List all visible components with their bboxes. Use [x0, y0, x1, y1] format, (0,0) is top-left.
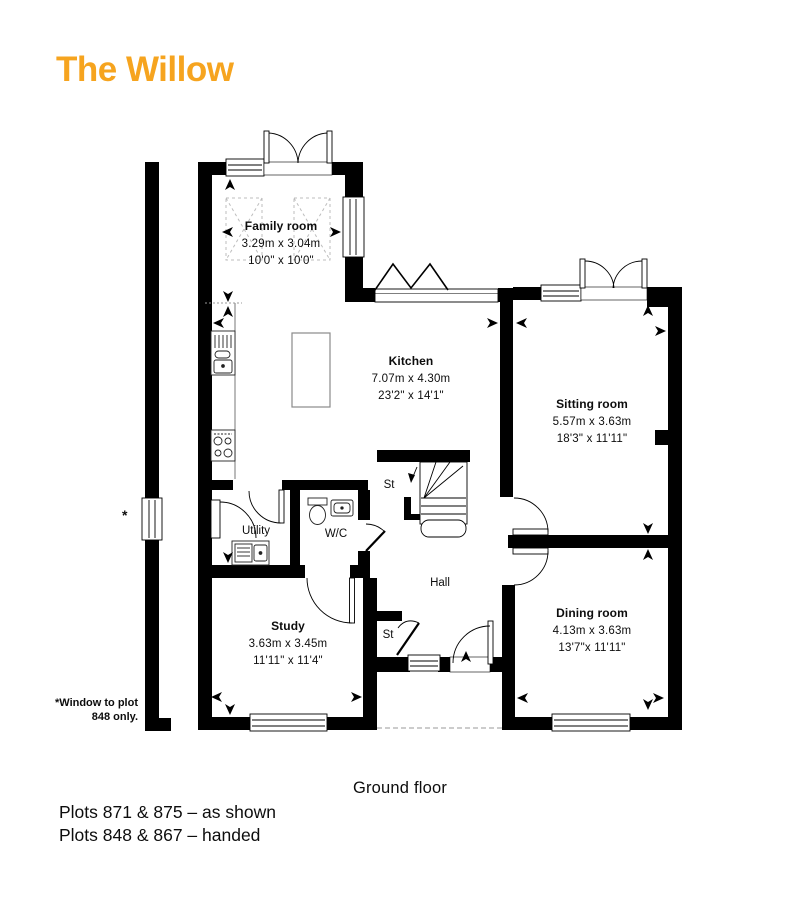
kitchen-sink-icon	[211, 331, 235, 375]
room-dim-metric: 5.57m x 3.63m	[553, 414, 632, 431]
hob-icon	[211, 430, 235, 461]
room-name: Kitchen	[372, 354, 451, 368]
room-dim-metric: 3.63m x 3.45m	[249, 636, 328, 653]
basin-icon	[331, 500, 353, 516]
window-note-line2: 848 only.	[18, 710, 138, 724]
utility-sink-icon	[232, 541, 269, 565]
plots-note: Plots 871 & 875 – as shown Plots 848 & 8…	[59, 801, 276, 847]
room-label-kitchen: Kitchen 7.07m x 4.30m 23'2" x 14'1"	[372, 354, 451, 404]
window-note-line1: *Window to plot	[18, 696, 138, 710]
room-dim-imperial: 18'3" x 11'11"	[553, 431, 632, 448]
room-name: Sitting room	[553, 397, 632, 411]
room-dim-imperial: 23'2" x 14'1"	[372, 388, 451, 405]
kitchen-island	[292, 333, 330, 407]
room-label-utility: Utility	[242, 525, 270, 537]
bifold-doors-icon	[375, 264, 498, 302]
room-dim-metric: 4.13m x 3.63m	[553, 623, 632, 640]
room-label-dining-room: Dining room 4.13m x 3.63m 13'7"x 11'11"	[553, 606, 632, 656]
toilet-icon	[308, 498, 327, 525]
room-dim-metric: 7.07m x 4.30m	[372, 371, 451, 388]
room-name: Study	[249, 619, 328, 633]
plots-note-line1: Plots 871 & 875 – as shown	[59, 801, 276, 824]
room-label-sitting-room: Sitting room 5.57m x 3.63m 18'3" x 11'11…	[553, 397, 632, 447]
room-dim-metric: 3.29m x 3.04m	[242, 236, 321, 253]
room-label-store-front: St	[383, 629, 394, 641]
room-label-family-room: Family room 3.29m x 3.04m 10'0" x 10'0"	[242, 219, 321, 269]
room-label-study: Study 3.63m x 3.45m 11'11" x 11'4"	[249, 619, 328, 669]
room-name: Family room	[242, 219, 321, 233]
room-label-store-understairs: St	[384, 479, 395, 491]
floorplan-page: The Willow	[0, 0, 800, 900]
floorplan-drawing	[0, 0, 800, 900]
window-note: *Window to plot 848 only.	[18, 696, 138, 724]
room-dim-imperial: 10'0" x 10'0"	[242, 253, 321, 270]
stairs-icon	[408, 462, 467, 537]
room-label-wc: W/C	[325, 528, 347, 540]
floor-label: Ground floor	[0, 779, 800, 798]
room-dim-imperial: 13'7"x 11'11"	[553, 640, 632, 657]
room-name: Dining room	[553, 606, 632, 620]
room-label-hall: Hall	[430, 577, 450, 589]
plots-note-line2: Plots 848 & 867 – handed	[59, 824, 276, 847]
room-dim-imperial: 11'11" x 11'4"	[249, 653, 328, 670]
window-asterisk: *	[122, 507, 127, 523]
